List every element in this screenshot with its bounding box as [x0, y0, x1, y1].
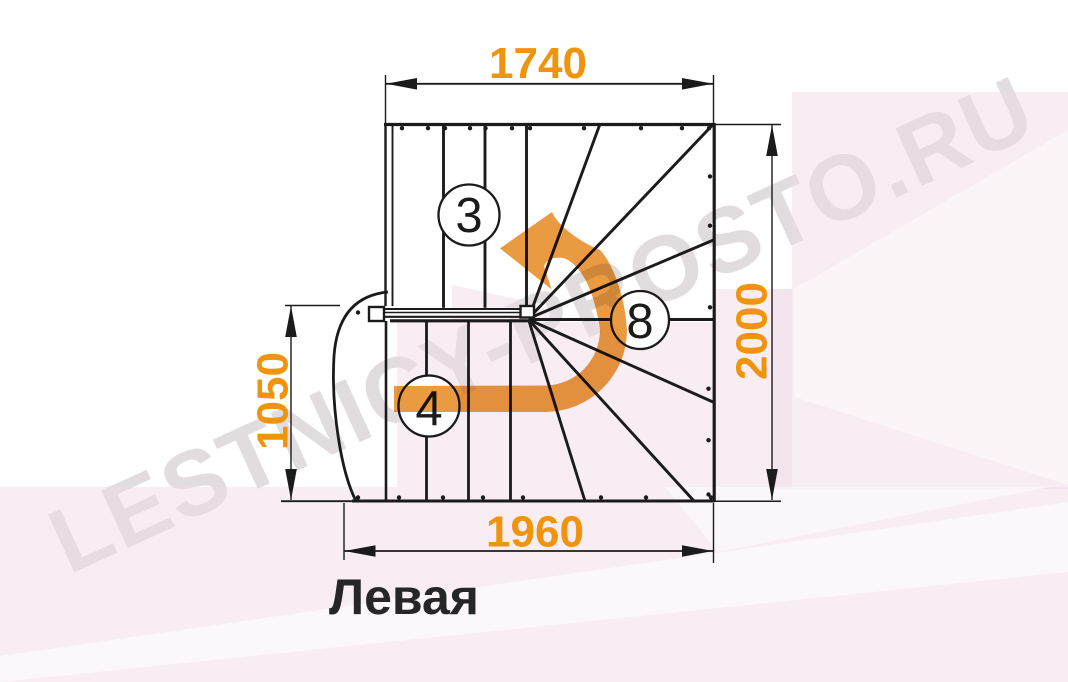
svg-text:8: 8 — [626, 295, 653, 349]
svg-text:1960: 1960 — [486, 508, 584, 557]
svg-text:Левая: Левая — [329, 569, 479, 625]
svg-text:1050: 1050 — [249, 352, 298, 450]
svg-text:2000: 2000 — [728, 282, 777, 380]
svg-text:3: 3 — [455, 189, 482, 243]
svg-text:1740: 1740 — [489, 39, 587, 88]
